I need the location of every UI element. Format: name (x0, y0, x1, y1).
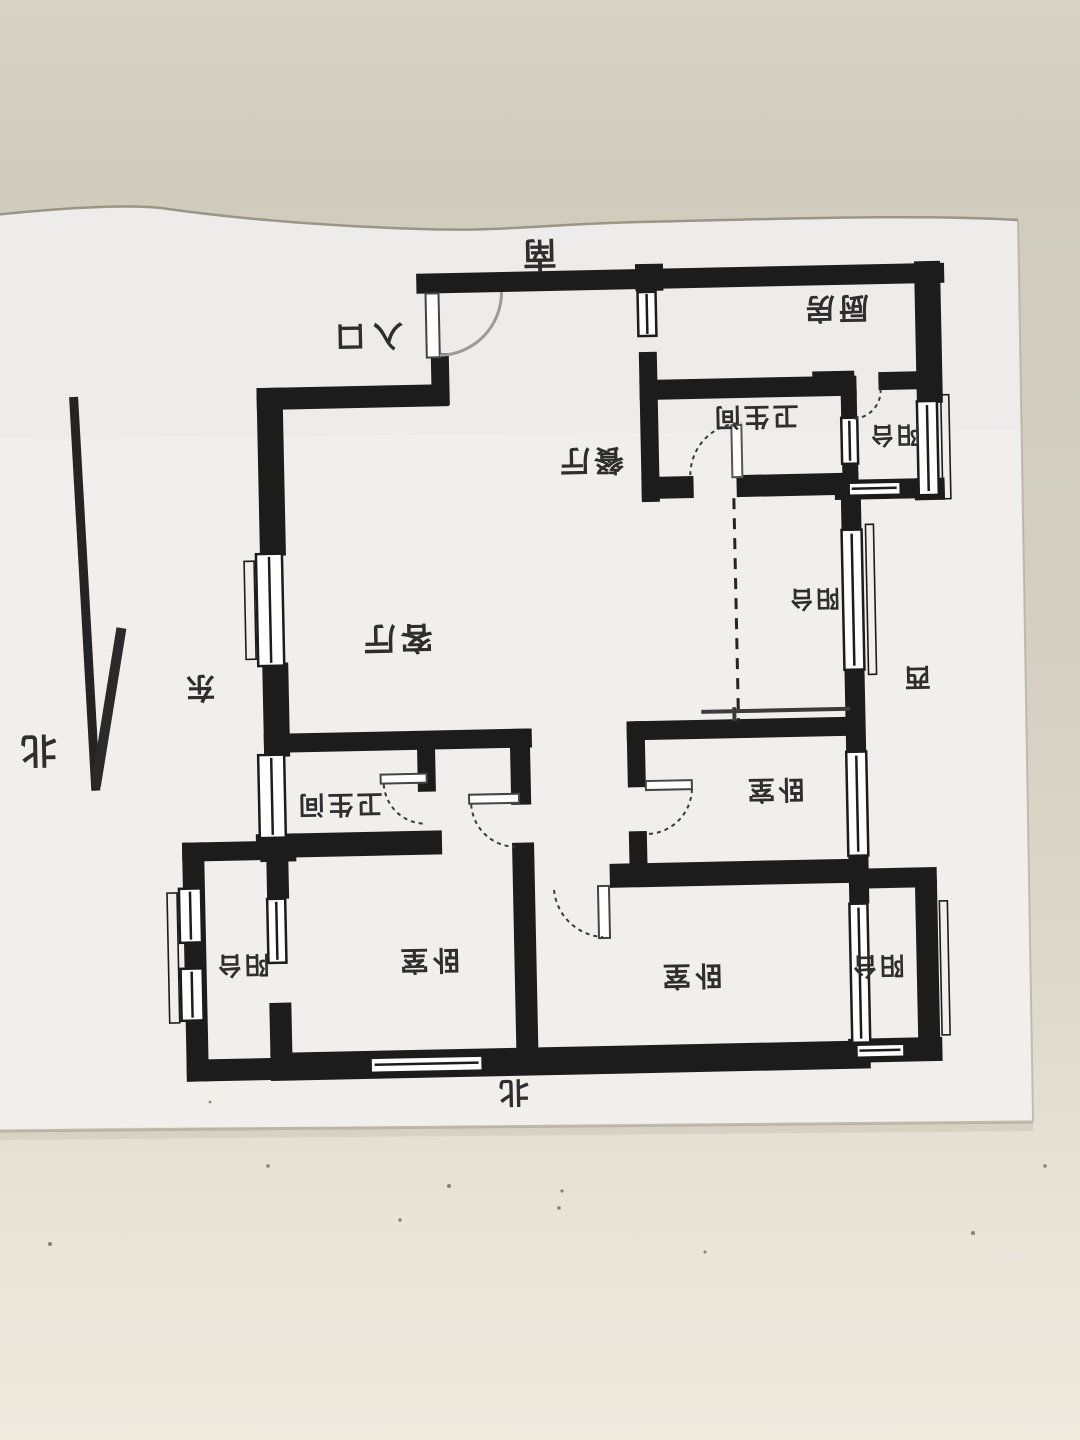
window-left-bathroom (258, 755, 286, 839)
room-label-bedroom-bottom-right: 卧室 (658, 959, 723, 993)
north-arrow-label: 北 (21, 728, 58, 770)
hall-door-leaf (469, 794, 519, 804)
bathroom-center-door-leaf (381, 774, 427, 784)
compass-south-label: 南 (522, 233, 557, 274)
room-label-balcony-bottom-left: 阳台 (215, 950, 270, 980)
window-balcony-top-left (841, 418, 858, 464)
room-label-living: 客厅 (358, 619, 433, 659)
window-balcony-left-1 (179, 888, 202, 942)
compass-north-label: 北 (499, 1074, 530, 1110)
window-bottom-bedroom (370, 1056, 482, 1073)
window-balcony-br-bottom (856, 1044, 904, 1058)
room-label-balcony-east: 阳台 (788, 584, 841, 613)
room-label-kitchen: 厨房 (801, 289, 870, 325)
room-label-bathroom-center: 卫生间 (295, 788, 383, 820)
floor-plan-photo: 北 南 入口 厨房 卫生间 阳台 餐厅 客厅 东 阳台 西 卧室 卫生间 阳台 … (0, 0, 1080, 1440)
bedroom-br-door-leaf (598, 886, 610, 938)
room-label-bedroom-bottom-left: 卧室 (396, 943, 461, 977)
compass-west-label: 西 (904, 661, 931, 692)
entrance-door-leaf (425, 293, 439, 357)
bathroom-top-door-leaf (731, 425, 742, 477)
window-right-bedroom-east (846, 751, 868, 855)
room-label-balcony-top-right: 阳台 (868, 420, 921, 449)
room-label-dining: 餐厅 (556, 441, 625, 477)
bedroom-east-door-leaf (646, 780, 692, 790)
room-label-bathroom-top: 卫生间 (711, 400, 799, 432)
compass-east-label: 东 (185, 669, 216, 705)
window-balcony-top-bottom (849, 482, 901, 496)
window-kitchen-glass (638, 292, 657, 336)
room-label-balcony-bottom-right: 阳台 (850, 951, 905, 981)
entrance-label: 入口 (327, 317, 404, 354)
photo-scene: 北 南 入口 厨房 卫生间 阳台 餐厅 客厅 东 阳台 西 卧室 卫生间 阳台 … (0, 0, 1080, 1440)
room-label-bedroom-east: 卧室 (745, 773, 806, 806)
